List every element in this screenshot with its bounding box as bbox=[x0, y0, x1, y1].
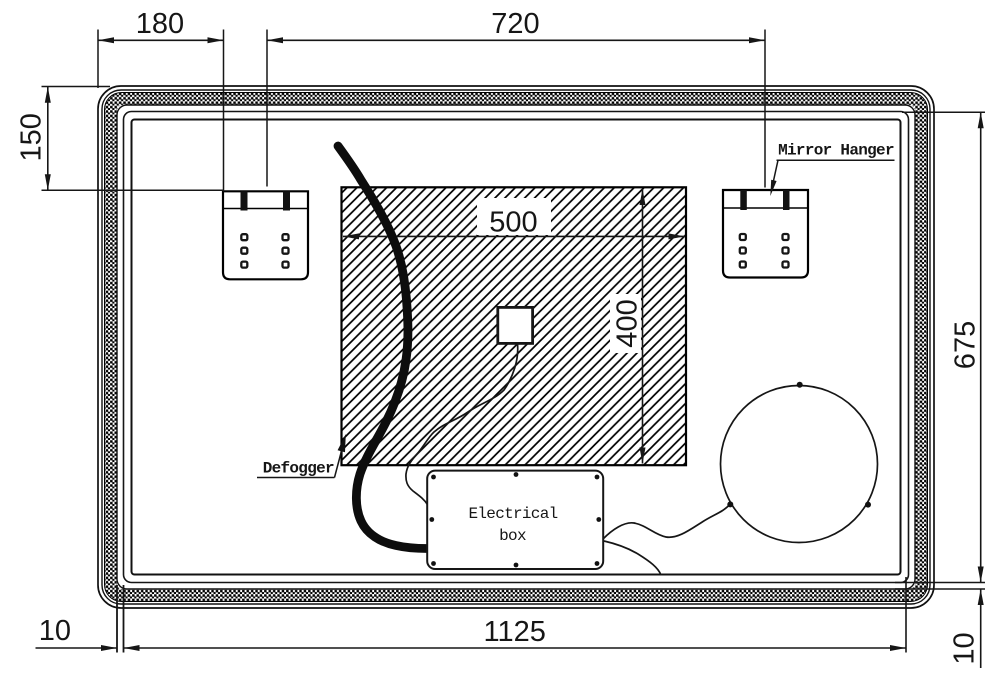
svg-text:500: 500 bbox=[489, 207, 537, 239]
svg-text:675: 675 bbox=[950, 321, 982, 369]
svg-text:10: 10 bbox=[949, 632, 981, 664]
svg-text:1125: 1125 bbox=[484, 616, 546, 648]
svg-text:150: 150 bbox=[16, 113, 48, 161]
svg-text:180: 180 bbox=[136, 8, 184, 40]
svg-text:box: box bbox=[499, 527, 526, 545]
svg-text:Defogger: Defogger bbox=[263, 460, 334, 478]
svg-text:Electrical: Electrical bbox=[468, 505, 557, 523]
svg-text:10: 10 bbox=[39, 615, 71, 647]
svg-text:720: 720 bbox=[491, 8, 539, 40]
svg-text:Mirror Hanger: Mirror Hanger bbox=[778, 142, 894, 160]
svg-text:400: 400 bbox=[612, 299, 644, 347]
